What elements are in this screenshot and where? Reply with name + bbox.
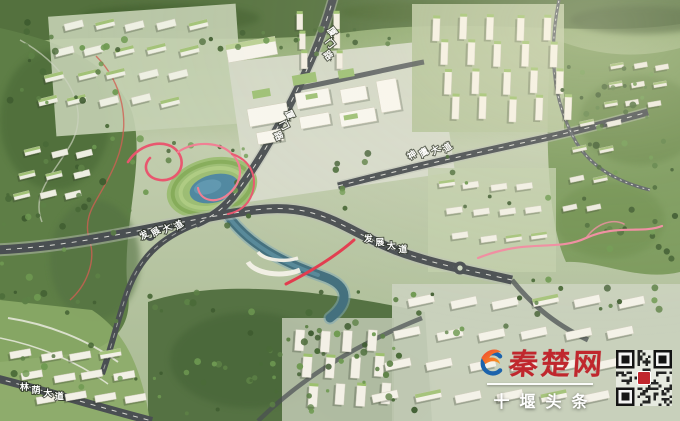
qr-code [616, 350, 672, 406]
watermark-divider [487, 383, 593, 385]
watermark-text-block: 秦楚网 十堰头条 [476, 343, 605, 412]
site-name: 秦楚网 [508, 349, 606, 379]
channel-name: 十堰头条 [483, 388, 597, 412]
qinchu-swirl-icon [476, 343, 504, 379]
aerial-masterplan-image: 厦门路 厦门路 神鹰大道 发展大道 发展大道 林荫大道 秦楚网 [0, 0, 680, 421]
watermark: 秦楚网 十堰头条 [476, 343, 672, 412]
